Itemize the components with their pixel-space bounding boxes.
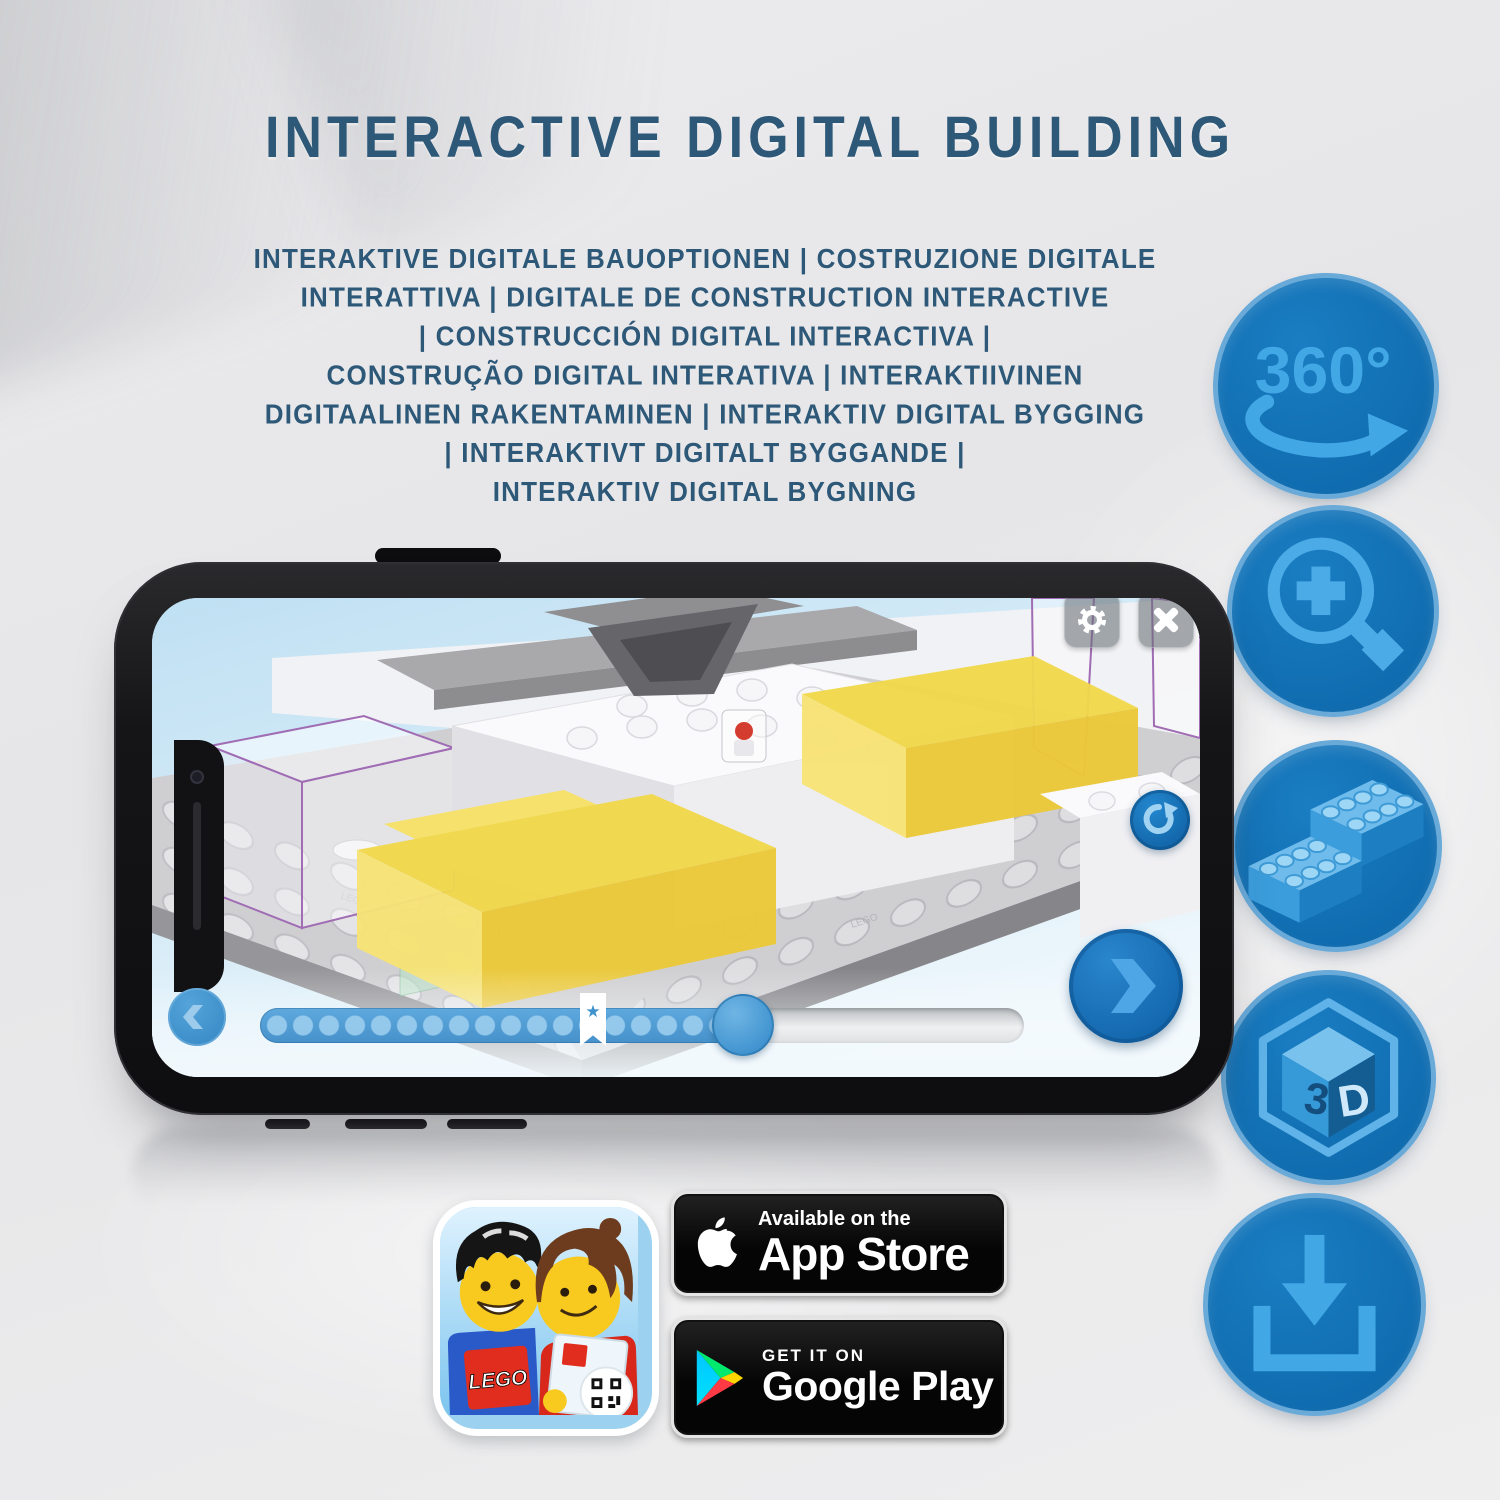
progress-dots	[264, 1008, 736, 1043]
lego-bricks-icon	[1235, 745, 1437, 947]
phone-mockup: LEGO LEGO	[114, 562, 1234, 1115]
chevron-right-icon	[1069, 929, 1183, 1043]
progress-fill	[260, 1008, 740, 1043]
gear-icon	[1072, 600, 1112, 640]
phone-notch	[174, 740, 224, 992]
close-button[interactable]	[1138, 598, 1194, 648]
feature-zoom	[1227, 505, 1439, 717]
app-store-badge[interactable]: Available on the App Store	[671, 1191, 1007, 1296]
download-icon	[1208, 1198, 1421, 1411]
progress-slider[interactable]	[260, 1008, 1024, 1043]
previous-step-button[interactable]	[168, 988, 226, 1046]
google-play-badge[interactable]: GET IT ON Google Play	[671, 1317, 1007, 1438]
feature-download	[1203, 1193, 1426, 1416]
star-icon: ★	[580, 1002, 606, 1022]
camera-icon	[190, 770, 204, 784]
apple-icon	[696, 1217, 742, 1271]
settings-button[interactable]	[1064, 598, 1120, 648]
feature-3d: 3 D	[1221, 970, 1436, 1185]
page-title: INTERACTIVE DIGITAL BUILDING	[0, 104, 1500, 171]
multilingual-subtitle: INTERAKTIVE DIGITALE BAUOPTIONEN | COSTR…	[85, 240, 1325, 512]
lego-app-icon[interactable]: LEGO	[433, 1200, 659, 1436]
3d-cube-icon: 3 D	[1226, 975, 1431, 1180]
phone-screen: LEGO LEGO	[152, 598, 1200, 1077]
google-play-name: Google Play	[762, 1365, 993, 1408]
feature-rotate-360: 360°	[1213, 273, 1439, 499]
lego-minifigures-art: LEGO	[440, 1207, 638, 1415]
slider-thumb[interactable]	[712, 994, 774, 1056]
rotate-view-button[interactable]	[1130, 790, 1190, 850]
rotate-360-icon: 360°	[1218, 278, 1434, 494]
app-store-tagline: Available on the	[758, 1209, 969, 1230]
svg-text:360°: 360°	[1255, 334, 1392, 408]
subtitle-line: DIGITAALINEN RAKENTAMINEN | INTERAKTIV D…	[85, 395, 1325, 434]
next-step-button[interactable]	[1069, 929, 1183, 1043]
earpiece	[193, 802, 201, 930]
subtitle-line: INTERATTIVA | DIGITALE DE CONSTRUCTION I…	[85, 278, 1325, 317]
poster: INTERACTIVE DIGITAL BUILDING INTERAKTIVE…	[0, 0, 1500, 1500]
subtitle-line: CONSTRUÇÃO DIGITAL INTERATIVA | INTERAKT…	[85, 356, 1325, 395]
subtitle-line: INTERAKTIV DIGITAL BYGNING	[85, 473, 1325, 512]
feature-bricks	[1230, 740, 1442, 952]
google-play-icon	[696, 1350, 746, 1406]
subtitle-line: | CONSTRUCCIÓN DIGITAL INTERACTIVA |	[85, 317, 1325, 356]
chevron-left-icon	[177, 997, 217, 1037]
app-store-name: App Store	[758, 1230, 969, 1278]
subtitle-line: INTERAKTIVE DIGITALE BAUOPTIONEN | COSTR…	[85, 240, 1325, 279]
lego-3d-scene: LEGO LEGO	[152, 598, 1200, 1077]
zoom-in-icon	[1232, 510, 1434, 712]
refresh-icon	[1140, 800, 1180, 840]
subtitle-line: | INTERAKTIVT DIGITALT BYGGANDE |	[85, 434, 1325, 473]
